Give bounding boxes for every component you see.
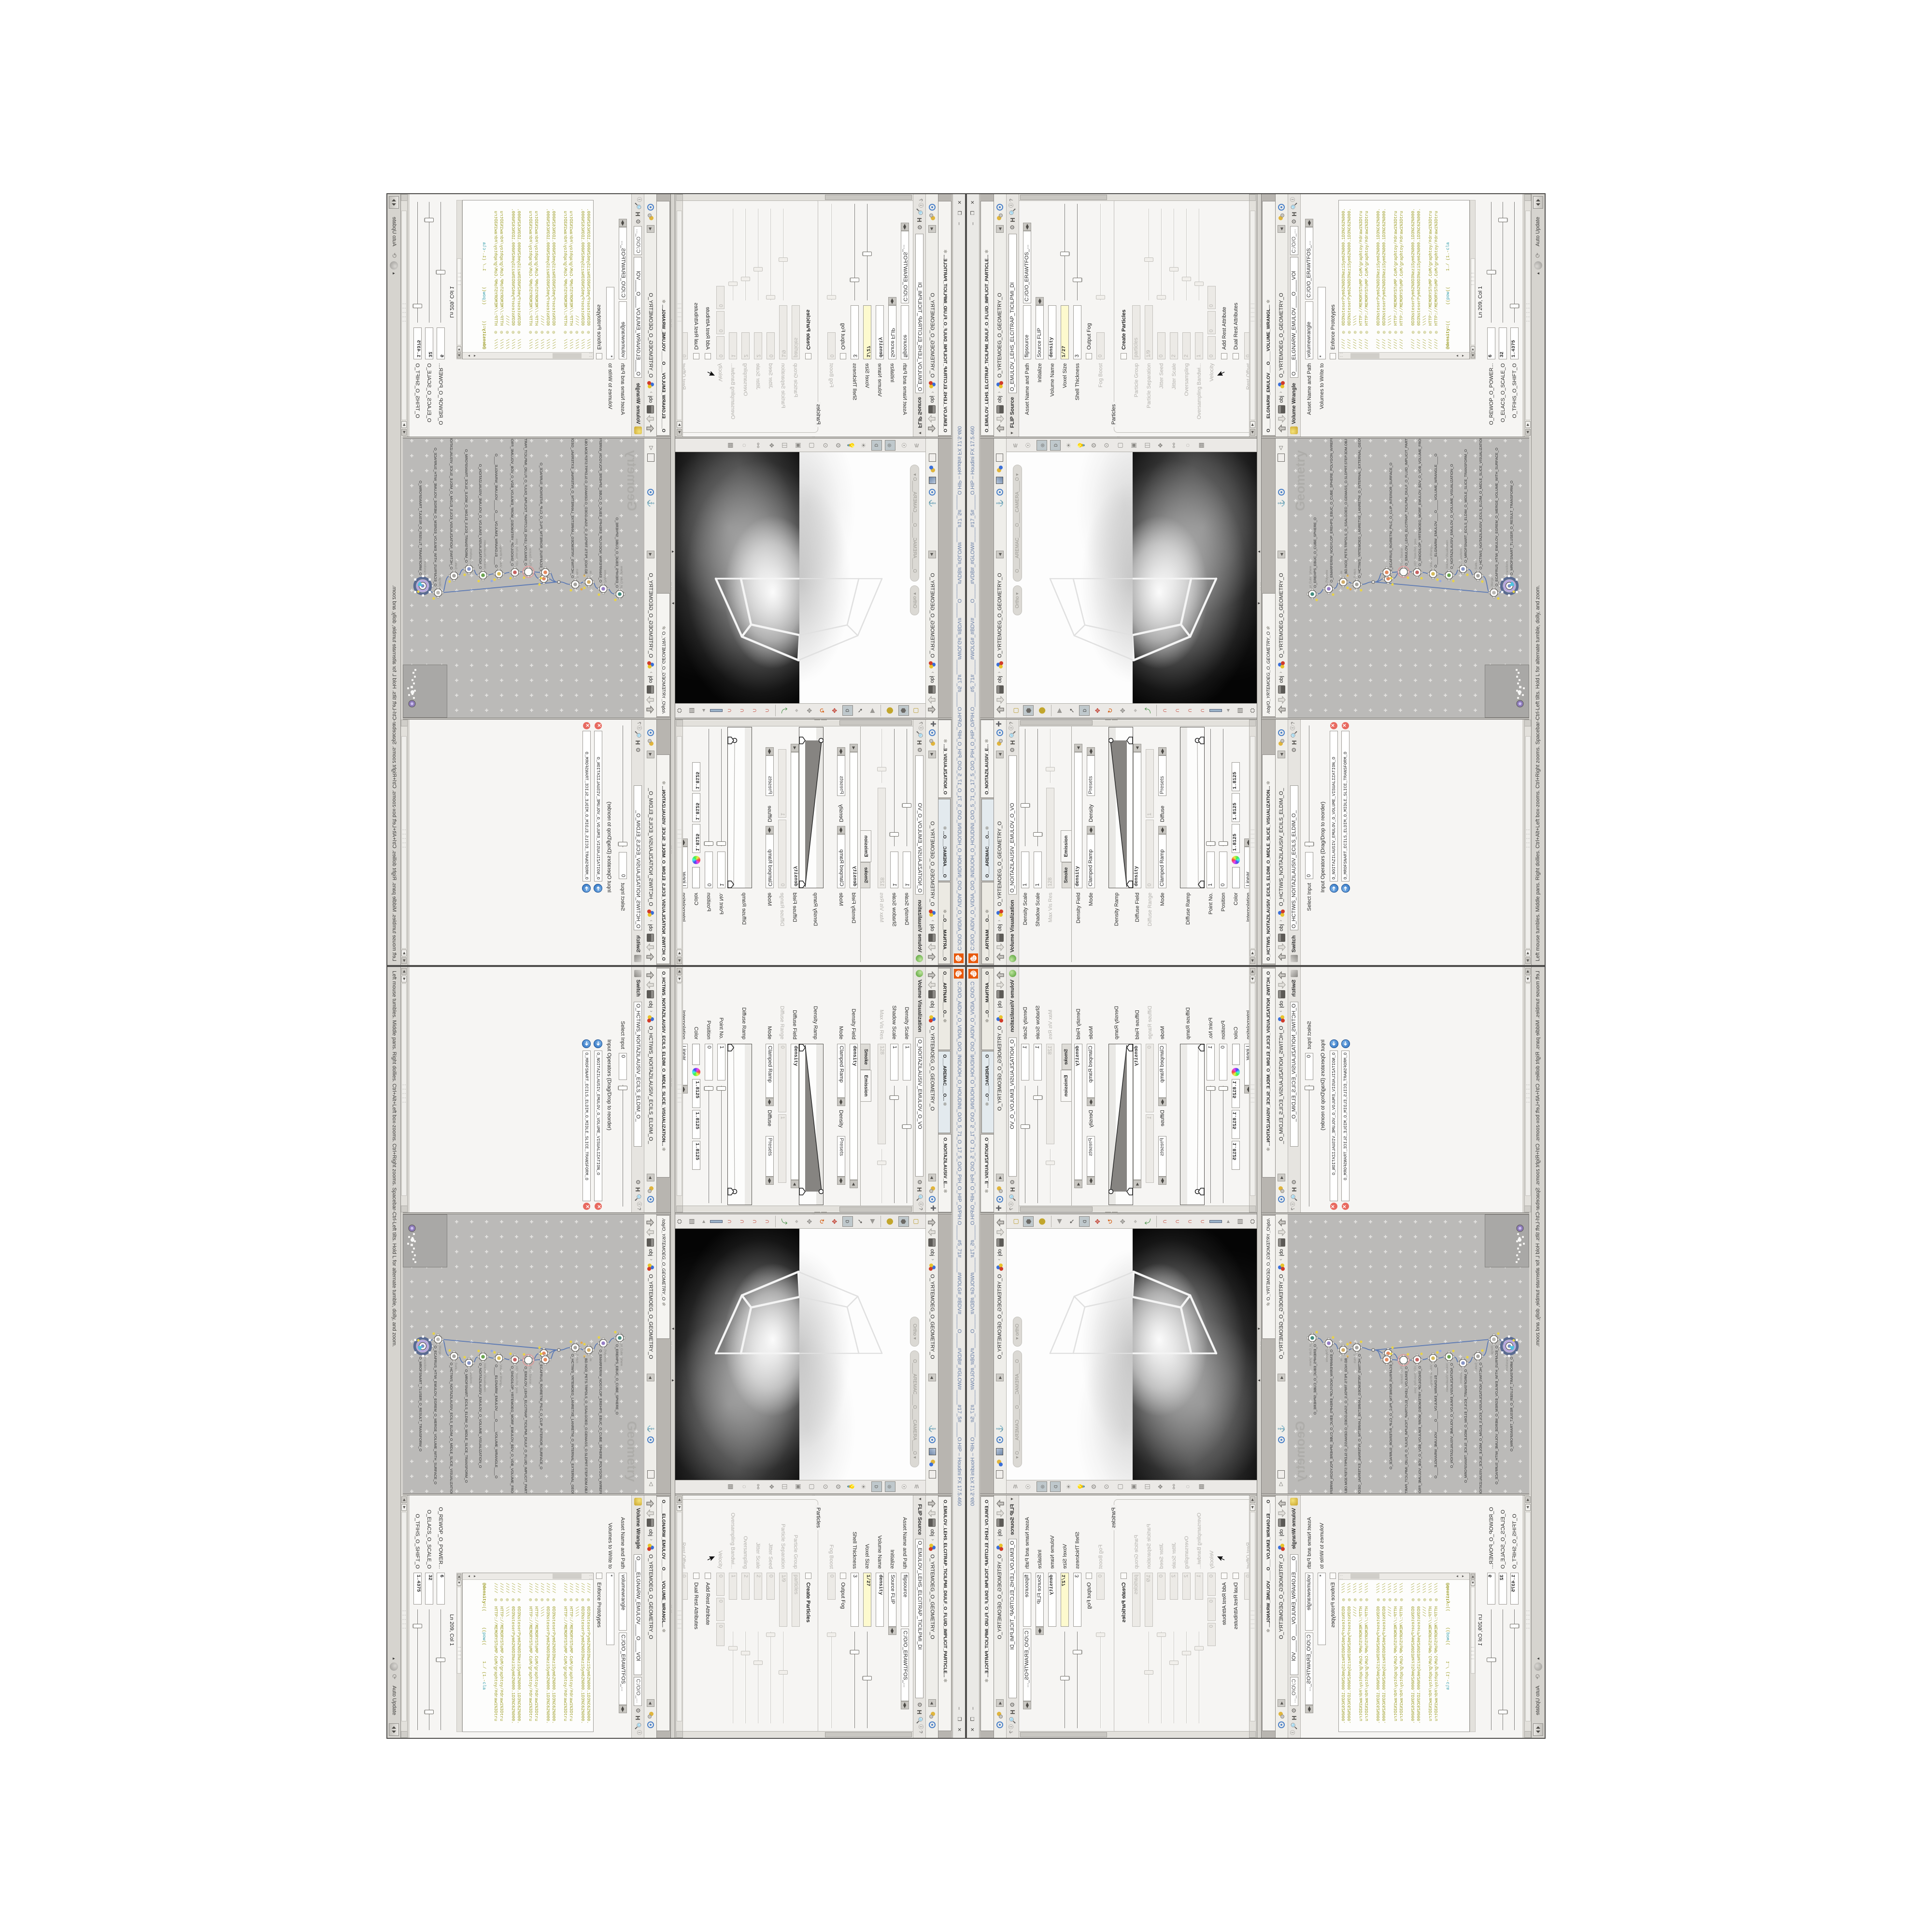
svg-text:O_HCTIWS_NOITAZILAUSIV_ECILS_E: O_HCTIWS_NOITAZILAUSIV_ECILS_ELDIM_O_MID…: [449, 1363, 454, 1493]
svg-text:FLIP Source: FLIP Source: [528, 1366, 532, 1384]
svg-text:Volume Visualization: Volume Visualization: [483, 540, 486, 569]
svg-text:File: File: [589, 1356, 592, 1362]
svg-text:O_NOITAZILAUSIV_EMULOV_O_VOLUM: O_NOITAZILAUSIV_EMULOV_O_VOLUME_VISUALIZ…: [478, 1363, 483, 1468]
svg-text:Volume Wrangle: Volume Wrangle: [499, 544, 502, 568]
svg-text:Switch: Switch: [454, 1363, 457, 1372]
svg-text:O_MROFSNART_ECILS_ELDIM_O_MIDL: O_MROFSNART_ECILS_ELDIM_O_MIDLE_SLICE_TR…: [464, 1369, 469, 1483]
svg-text:Transform: Transform: [1460, 1369, 1463, 1383]
svg-text:Transform: Transform: [423, 561, 426, 575]
svg-text:_BD.NO3_PETS.TRPDLS_O_SSALGOED: _BD.NO3_PETS.TRPDLS_O_SSALGOED_O.GEMASS_…: [1344, 1356, 1348, 1493]
svg-text:O_NOITAZILAUSIV_EMULOV_O_VOLUM: O_NOITAZILAUSIV_EMULOV_O_VOLUME_VISUALIZ…: [478, 464, 483, 569]
svg-text:O_MROFSNART_TLUSER_O_RESULT_TR: O_MROFSNART_TLUSER_O_RESULT_TRANSFORM_O: [1509, 1357, 1514, 1451]
svg-text:pl_CubeSphere: pl_CubeSphere: [1309, 1344, 1312, 1366]
svg-text:O_MROFSNART_ECILS_ELDIM_O_MIDL: O_MROFSNART_ECILS_ELDIM_O_MIDLE_SLICE_TR…: [464, 449, 469, 563]
svg-text:Transform: Transform: [423, 1357, 426, 1371]
svg-text:Geometry: Geometry: [625, 450, 639, 511]
svg-text:O_EMARFERIW_NOGYLOP_EREHPS_EBU: O_EMARFERIW_NOGYLOP_EREHPS_EBUC_O_CUBE_S…: [598, 1350, 603, 1493]
svg-text:O____ELGNARW_EMULOV____O_____V: O____ELGNARW_EMULOV____O_____VOLUME_WRAN…: [494, 454, 498, 568]
svg-text:VDB from Polygons: VDB from Polygons: [515, 539, 518, 566]
svg-text:O_EREHPS_EBUC_O_CUBE_SPHERE_O: O_EREHPS_EBUC_O_CUBE_SPHERE_O: [615, 517, 619, 588]
svg-text:Volume Visualization: Volume Visualization: [1446, 540, 1449, 569]
svg-text:O_EMARFERIW_NOGYLOP_EREHPS_EBU: O_EMARFERIW_NOGYLOP_EREHPS_EBUC_O_CUBE_S…: [1329, 439, 1334, 582]
svg-text:O_SNOGILOP_YRTEMOEG_MORF_EMULO: O_SNOGILOP_YRTEMOEG_MORF_EMULOV_BDV_O_VD…: [1418, 1366, 1422, 1493]
svg-text:O_HCTIWS_NOITAZILAUSIV_ECILS_E: O_HCTIWS_NOITAZILAUSIV_ECILS_ELDIM_O_MID…: [1478, 439, 1483, 569]
svg-text:O_EREHPS_EBUC_O_CUBE_SPHERE_O: O_EREHPS_EBUC_O_CUBE_SPHERE_O: [615, 1344, 619, 1415]
svg-text:PolyWire: PolyWire: [603, 570, 607, 582]
svg-text:O_ECAFRUS_ROIRETNI_PILC_O_CLIP: O_ECAFRUS_ROIRETNI_PILC_O_CLIP_INTERIOR_…: [1389, 463, 1393, 572]
svg-text:File: File: [589, 570, 592, 576]
svg-text:O_HCTIWS_YRTEMOEG_LANRETXE_LAN: O_HCTIWS_YRTEMOEG_LANRETXE_LANRETNI_O_IN…: [1357, 439, 1362, 578]
svg-text:PolyWire: PolyWire: [603, 1350, 607, 1362]
svg-text:O_SNOGILOP_YRTEMOEG_MORF_EMULO: O_SNOGILOP_YRTEMOEG_MORF_EMULOV_BDV_O_VD…: [1418, 439, 1422, 566]
svg-text:Switch: Switch: [1353, 568, 1357, 578]
svg-text:Transform: Transform: [1506, 1357, 1509, 1371]
svg-text:O_HCTIWS_NOITAZILAUSIV_ECILS_E: O_HCTIWS_NOITAZILAUSIV_ECILS_ELDIM_O_MID…: [1478, 1363, 1483, 1493]
svg-text:O_EMULOV_LEHS_ELCITRAP_TICILPM: O_EMULOV_LEHS_ELCITRAP_TICILPMI_DIULF_O_…: [524, 1366, 528, 1493]
svg-text:O_EMULOV_LEHS_ELCITRAP_TICILPM: O_EMULOV_LEHS_ELCITRAP_TICILPMI_DIULF_O_…: [524, 439, 528, 566]
svg-text:Merge: Merge: [1491, 1346, 1494, 1355]
svg-text:O____ELGNARW_EMULOV____O_____V: O____ELGNARW_EMULOV____O_____VOLUME_WRAN…: [1434, 1364, 1438, 1478]
svg-text:_BD.NO3_PETS.TRPDLS_O_SSALGOED: _BD.NO3_PETS.TRPDLS_O_SSALGOED_O.GEMASS_…: [584, 1356, 588, 1493]
svg-text:O_MROFSNART_ECILS_ELDIM_O_MIDL: O_MROFSNART_ECILS_ELDIM_O_MIDLE_SLICE_TR…: [1463, 1369, 1468, 1483]
svg-text:O____ELGNARW_EMULOV____O_____V: O____ELGNARW_EMULOV____O_____VOLUME_WRAN…: [494, 1364, 498, 1478]
svg-text:Switch: Switch: [575, 1354, 579, 1364]
svg-text:Transform: Transform: [1460, 549, 1463, 563]
svg-text:pl_CubeSphere: pl_CubeSphere: [620, 566, 623, 588]
svg-text:Volume Wrangle: Volume Wrangle: [1430, 1364, 1433, 1388]
svg-text:O_SNOGILOP_YRTEMOEG_MORF_EMULO: O_SNOGILOP_YRTEMOEG_MORF_EMULOV_BDV_O_VD…: [510, 1366, 514, 1493]
svg-text:File: File: [1340, 570, 1343, 576]
svg-text:O_HCTIWS_YRTEMOEG_LANRETXE_LAN: O_HCTIWS_YRTEMOEG_LANRETXE_LANRETNI_O_IN…: [570, 439, 575, 578]
svg-text:O_MROFSNART_TLUSER_O_RESULT_TR: O_MROFSNART_TLUSER_O_RESULT_TRANSFORM_O: [1509, 481, 1514, 575]
svg-text:O_EMARFERIW_NOGYLOP_EREHPS_EBU: O_EMARFERIW_NOGYLOP_EREHPS_EBUC_O_CUBE_S…: [1329, 1350, 1334, 1493]
svg-text:PolyWire: PolyWire: [1325, 570, 1329, 582]
svg-text:O_MROFSNART_TLUSER_O_RESULT_TR: O_MROFSNART_TLUSER_O_RESULT_TRANSFORM_O: [418, 481, 423, 575]
svg-text:O_ECAFRUS_ROIRETNI_PILC_O_CLIP: O_ECAFRUS_ROIRETNI_PILC_O_CLIP_INTERIOR_…: [539, 463, 543, 572]
svg-text:O_NOITAZILAUSIV_EMULOV_O_VOLUM: O_NOITAZILAUSIV_EMULOV_O_VOLUME_VISUALIZ…: [1449, 1363, 1454, 1468]
svg-text:O_HCTIWS_NOITAZILAUSIV_ECILS_E: O_HCTIWS_NOITAZILAUSIV_ECILS_ELDIM_O_MID…: [449, 439, 454, 569]
svg-text:Merge: Merge: [1491, 577, 1494, 586]
svg-text:O_ECAFRUS_ROIRETNI_PILC_O_CLIP: O_ECAFRUS_ROIRETNI_PILC_O_CLIP_INTERIOR_…: [1389, 1360, 1393, 1469]
svg-text:O_ECAFRUS_ROIRETNI_PILC_O_CLIP: O_ECAFRUS_ROIRETNI_PILC_O_CLIP_INTERIOR_…: [539, 1360, 543, 1469]
svg-text:VDB from Polygons: VDB from Polygons: [515, 1366, 518, 1393]
svg-text:FLIP Source: FLIP Source: [1400, 1366, 1404, 1384]
svg-text:O_HCTIWS_YRTEMOEG_LANRETXE_LAN: O_HCTIWS_YRTEMOEG_LANRETXE_LANRETNI_O_IN…: [570, 1354, 575, 1493]
svg-text:pl_CubeSphere: pl_CubeSphere: [620, 1344, 623, 1366]
svg-text:O_ECAFRUS_HTIW_EMULOV_EGREM_O_: O_ECAFRUS_HTIW_EMULOV_EGREM_O_MERGE_VOLU…: [1494, 448, 1499, 586]
svg-text:O_EMARFERIW_NOGYLOP_EREHPS_EBU: O_EMARFERIW_NOGYLOP_EREHPS_EBUC_O_CUBE_S…: [598, 439, 603, 582]
svg-text:pl_CubeSphere: pl_CubeSphere: [1309, 566, 1312, 588]
svg-text:VDB from Polygons: VDB from Polygons: [1414, 1366, 1417, 1393]
svg-text:Switch: Switch: [1353, 1354, 1357, 1364]
svg-text:Volume Wrangle: Volume Wrangle: [499, 1364, 502, 1388]
svg-text:O_EMULOV_LEHS_ELCITRAP_TICILPM: O_EMULOV_LEHS_ELCITRAP_TICILPMI_DIULF_O_…: [1404, 1366, 1408, 1493]
svg-text:Switch: Switch: [575, 568, 579, 578]
svg-text:Switch: Switch: [454, 560, 457, 569]
svg-text:O_EMULOV_LEHS_ELCITRAP_TICILPM: O_EMULOV_LEHS_ELCITRAP_TICILPMI_DIULF_O_…: [1404, 439, 1408, 566]
svg-text:Transform: Transform: [469, 549, 472, 563]
svg-text:VDB from Polygons: VDB from Polygons: [1414, 539, 1417, 566]
svg-text:Volume Visualization: Volume Visualization: [483, 1363, 486, 1392]
svg-text:_BD.NO3_PETS.TRPDLS_O_SSALGOED: _BD.NO3_PETS.TRPDLS_O_SSALGOED_O.GEMASS_…: [584, 439, 588, 576]
svg-text:O_ECAFRUS_HTIW_EMULOV_EGREM_O_: O_ECAFRUS_HTIW_EMULOV_EGREM_O_MERGE_VOLU…: [1494, 1346, 1499, 1484]
svg-text:Merge: Merge: [438, 1346, 441, 1355]
svg-text:Merge: Merge: [438, 577, 441, 586]
svg-text:Switch: Switch: [1475, 1363, 1478, 1372]
svg-text:O_MROFSNART_ECILS_ELDIM_O_MIDL: O_MROFSNART_ECILS_ELDIM_O_MIDLE_SLICE_TR…: [1463, 449, 1468, 563]
svg-text:O_HCTIWS_YRTEMOEG_LANRETXE_LAN: O_HCTIWS_YRTEMOEG_LANRETXE_LANRETNI_O_IN…: [1357, 1354, 1362, 1493]
svg-text:FLIP Source: FLIP Source: [528, 548, 532, 566]
svg-text:PolyWire: PolyWire: [1325, 1350, 1329, 1362]
svg-text:O_MROFSNART_TLUSER_O_RESULT_TR: O_MROFSNART_TLUSER_O_RESULT_TRANSFORM_O: [418, 1357, 423, 1451]
svg-text:Switch: Switch: [1475, 560, 1478, 569]
svg-text:O_EREHPS_EBUC_O_CUBE_SPHERE_O: O_EREHPS_EBUC_O_CUBE_SPHERE_O: [1313, 517, 1317, 588]
svg-text:O_EREHPS_EBUC_O_CUBE_SPHERE_O: O_EREHPS_EBUC_O_CUBE_SPHERE_O: [1313, 1344, 1317, 1415]
svg-text:O_ECAFRUS_HTIW_EMULOV_EGREM_O_: O_ECAFRUS_HTIW_EMULOV_EGREM_O_MERGE_VOLU…: [433, 1346, 438, 1484]
svg-text:Transform: Transform: [469, 1369, 472, 1383]
svg-text:Geometry: Geometry: [625, 1421, 639, 1482]
svg-text:Geometry: Geometry: [1293, 450, 1307, 511]
svg-text:O_ECAFRUS_HTIW_EMULOV_EGREM_O_: O_ECAFRUS_HTIW_EMULOV_EGREM_O_MERGE_VOLU…: [433, 448, 438, 586]
svg-text:O_NOITAZILAUSIV_EMULOV_O_VOLUM: O_NOITAZILAUSIV_EMULOV_O_VOLUME_VISUALIZ…: [1449, 464, 1454, 569]
svg-text:FLIP Source: FLIP Source: [1400, 548, 1404, 566]
svg-text:O_SNOGILOP_YRTEMOEG_MORF_EMULO: O_SNOGILOP_YRTEMOEG_MORF_EMULOV_BDV_O_VD…: [510, 439, 514, 566]
svg-text:_BD.NO3_PETS.TRPDLS_O_SSALGOED: _BD.NO3_PETS.TRPDLS_O_SSALGOED_O.GEMASS_…: [1344, 439, 1348, 576]
svg-text:Volume Visualization: Volume Visualization: [1446, 1363, 1449, 1392]
svg-text:Transform: Transform: [1506, 561, 1509, 575]
svg-text:O____ELGNARW_EMULOV____O_____V: O____ELGNARW_EMULOV____O_____VOLUME_WRAN…: [1434, 454, 1438, 568]
svg-text:File: File: [1340, 1356, 1343, 1362]
svg-text:Geometry: Geometry: [1293, 1421, 1307, 1482]
svg-text:Volume Wrangle: Volume Wrangle: [1430, 544, 1433, 568]
